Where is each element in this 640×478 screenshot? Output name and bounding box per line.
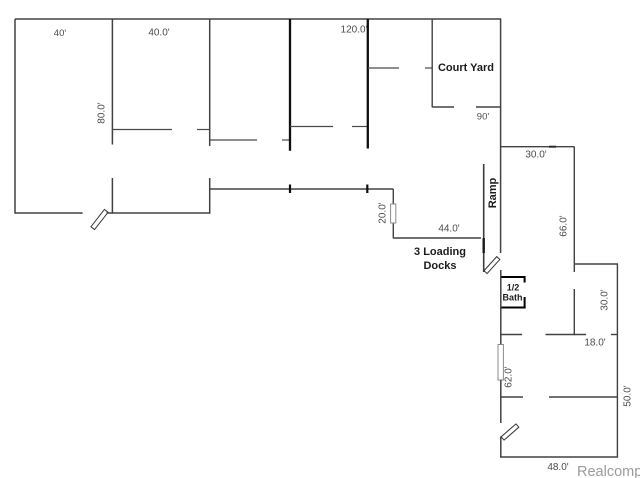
svg-text:20.0': 20.0' <box>378 202 389 223</box>
svg-text:120.0': 120.0' <box>341 25 368 36</box>
svg-text:50.0': 50.0' <box>623 385 634 406</box>
svg-text:90': 90' <box>477 112 490 123</box>
svg-text:Realcomp: Realcomp <box>577 464 640 478</box>
svg-text:30.0': 30.0' <box>600 289 611 310</box>
svg-text:18.0': 18.0' <box>584 338 605 349</box>
svg-text:66.0': 66.0' <box>559 215 570 236</box>
svg-text:1/2: 1/2 <box>507 283 520 293</box>
svg-text:80.0': 80.0' <box>97 102 108 123</box>
svg-text:40': 40' <box>54 28 67 39</box>
svg-text:Bath: Bath <box>503 293 523 303</box>
svg-text:Docks: Docks <box>423 260 456 272</box>
svg-text:Court Yard: Court Yard <box>438 62 494 74</box>
svg-text:Ramp: Ramp <box>487 177 499 208</box>
svg-text:30.0': 30.0' <box>525 150 546 161</box>
svg-text:44.0': 44.0' <box>438 224 459 235</box>
svg-text:40.0': 40.0' <box>148 28 169 39</box>
svg-text:3 Loading: 3 Loading <box>414 246 466 258</box>
svg-text:62.0': 62.0' <box>504 366 515 387</box>
svg-text:48.0': 48.0' <box>547 462 568 473</box>
